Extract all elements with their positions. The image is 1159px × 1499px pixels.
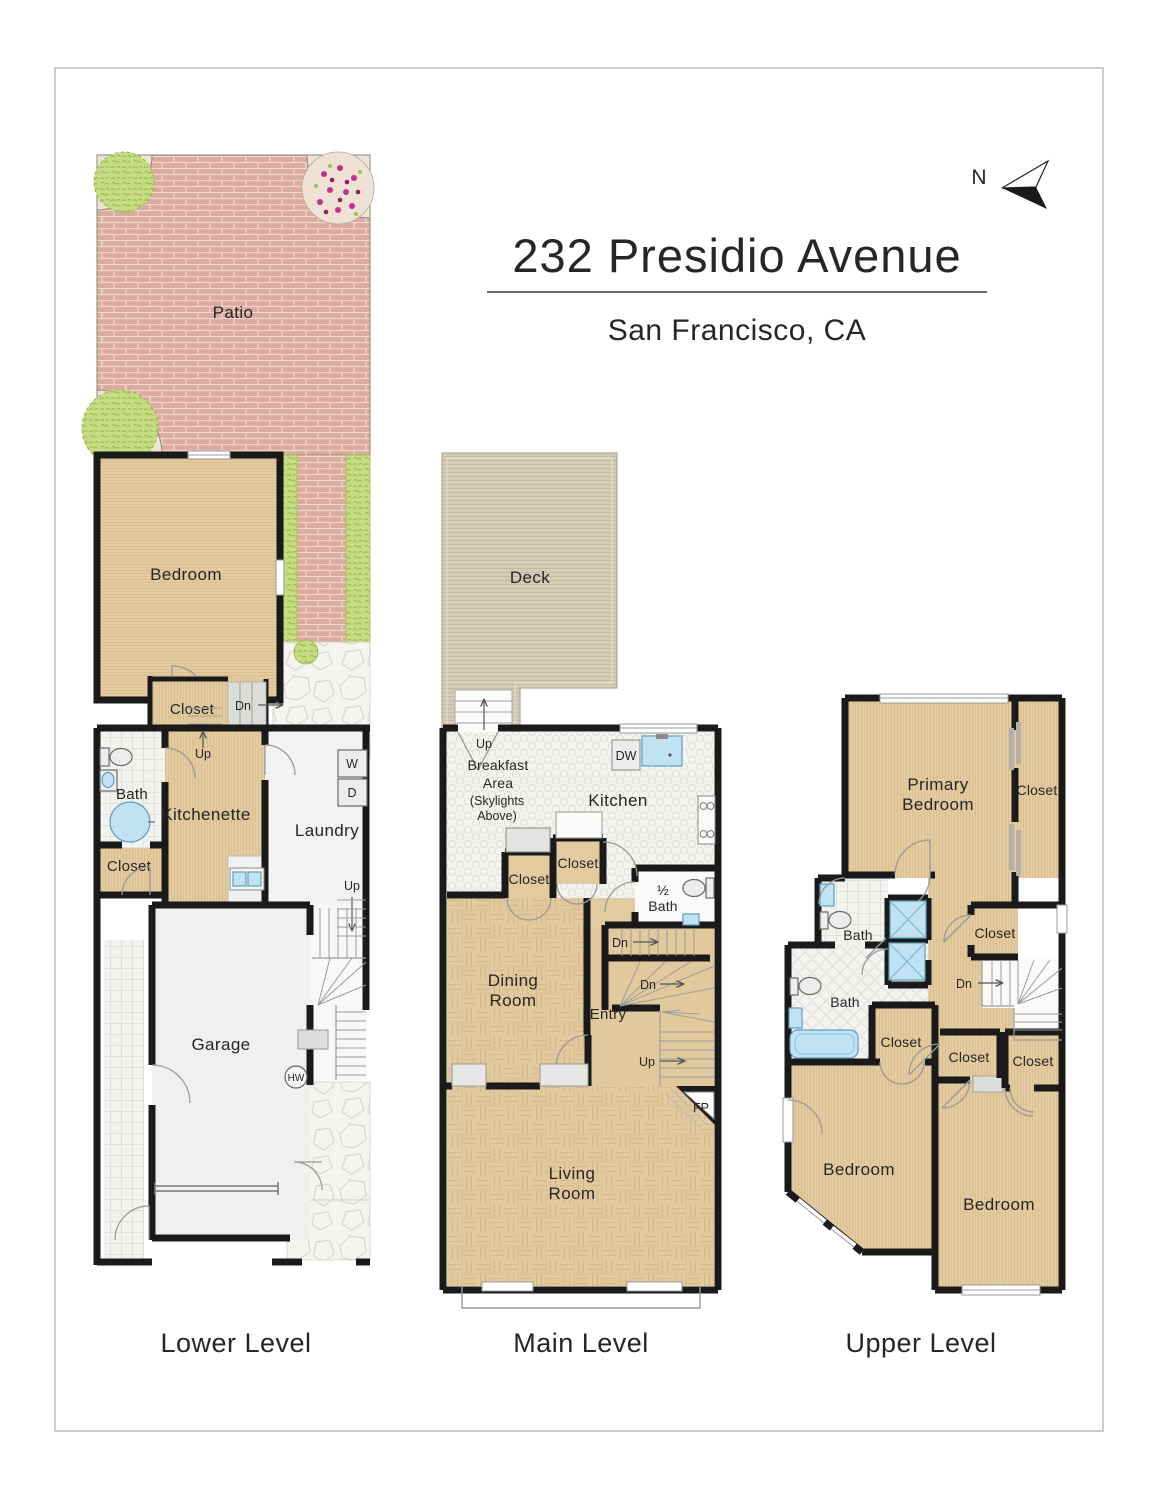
- fireplace-label: FP: [693, 1101, 709, 1115]
- up-label: Up: [344, 879, 360, 893]
- primary-bedroom-label: Primary: [907, 775, 968, 794]
- sink-basin-icon: [233, 872, 246, 886]
- closet-label: Closet: [1017, 782, 1058, 798]
- sink-icon: [102, 773, 114, 788]
- bedroom-left-floor: [788, 1062, 935, 1252]
- closet-label: Closet: [881, 1034, 922, 1050]
- window: [1057, 905, 1067, 933]
- water-heater-label: HW: [288, 1073, 305, 1084]
- patio: Patio: [82, 152, 374, 466]
- toilet-icon: [829, 912, 851, 929]
- half-wall: [540, 1064, 588, 1086]
- primary-bedroom-label-2: Bedroom: [902, 795, 974, 814]
- lower-level-plan: Patio Bedroom: [82, 152, 374, 1358]
- compass-icon: N: [971, 161, 1048, 209]
- page-subtitle: San Francisco, CA: [608, 314, 867, 347]
- deck: Deck: [442, 453, 617, 733]
- toilet-tank: [820, 912, 828, 929]
- entry-label: Entry: [590, 1006, 627, 1023]
- faucet: [656, 734, 668, 739]
- compass-needle-fill: [1002, 187, 1047, 209]
- lower-bedroom: Bedroom: [97, 451, 284, 700]
- toilet-icon: [683, 880, 705, 897]
- half-bath-fraction: ½: [657, 882, 669, 898]
- washer-label: W: [346, 757, 358, 771]
- bedroom-label: Bedroom: [150, 565, 222, 584]
- flower-shrub-icon: [302, 152, 374, 224]
- patio-label: Patio: [213, 303, 254, 322]
- dn-label: Dn: [235, 699, 251, 713]
- bedroom-right-floor: [935, 1080, 1062, 1290]
- deck-label: Deck: [510, 568, 550, 587]
- threshold: [973, 1076, 1003, 1092]
- upper-level-label: Upper Level: [845, 1328, 996, 1358]
- skylights-note: (Skylights: [470, 794, 524, 808]
- skylights-note-2: Above): [477, 809, 517, 823]
- lower-level-label: Lower Level: [160, 1328, 311, 1358]
- main-level-label: Main Level: [513, 1328, 649, 1358]
- page-title: 232 Presidio Avenue: [512, 229, 961, 282]
- half-bath-floor: [635, 868, 714, 925]
- kitchen-label: Kitchen: [588, 791, 648, 810]
- window: [482, 1282, 533, 1291]
- sink-icon: [789, 1008, 802, 1028]
- living-label: Living: [549, 1164, 596, 1183]
- toilet-tank: [100, 748, 109, 766]
- kitchen-sink-icon: [642, 736, 682, 766]
- breakfast-label: Breakfast: [468, 757, 529, 773]
- closet-label: Closet: [170, 701, 215, 718]
- closet-label: Closet: [558, 855, 599, 871]
- up-label: Up: [476, 737, 492, 751]
- sink-icon: [683, 914, 699, 925]
- soaking-tub-icon: [110, 802, 150, 842]
- dryer-label: D: [347, 786, 356, 800]
- half-wall: [452, 1064, 486, 1086]
- bedroom-label: Bedroom: [823, 1160, 895, 1179]
- main-level-plan: Deck DW: [442, 453, 718, 1358]
- counter: [556, 812, 602, 838]
- laundry-label: Laundry: [295, 821, 359, 840]
- bath-label: Bath: [843, 927, 873, 943]
- shrub-icon: [294, 640, 318, 664]
- closet-label: Closet: [975, 925, 1016, 941]
- bath-label: Bath: [830, 994, 860, 1010]
- up-label: Up: [639, 1055, 655, 1069]
- shrub-icon: [94, 152, 154, 212]
- window: [276, 560, 284, 595]
- walkway-tile: [104, 940, 144, 1262]
- toilet-icon: [110, 749, 132, 766]
- toilet-tank: [706, 878, 714, 898]
- toilet-tank: [790, 978, 798, 995]
- utility-box: [298, 1030, 328, 1049]
- dining-label: Dining: [488, 971, 539, 990]
- dn-label: Dn: [640, 978, 656, 992]
- half-bath-label: Bath: [648, 898, 678, 914]
- compass-needle-outline: [1002, 161, 1048, 188]
- living-label-2: Room: [549, 1184, 596, 1203]
- sink-icon: [820, 884, 834, 906]
- sink-basin-icon: [248, 872, 261, 886]
- dining-label-2: Room: [490, 991, 537, 1010]
- floorplan-sheet: 232 Presidio Avenue San Francisco, CA N: [0, 0, 1159, 1499]
- brick-path: [297, 455, 346, 642]
- dishwasher-label: DW: [616, 749, 637, 763]
- window: [783, 1098, 793, 1142]
- compass-north-label: N: [971, 166, 986, 189]
- garage-label: Garage: [191, 1035, 250, 1054]
- closet-label: Closet: [107, 858, 152, 875]
- refrigerator-icon: [506, 828, 550, 852]
- hedge-strip: [346, 455, 370, 655]
- toilet-icon: [799, 978, 821, 995]
- breakfast-label-2: Area: [483, 775, 513, 791]
- window: [627, 1282, 682, 1291]
- closet-label: Closet: [949, 1049, 990, 1065]
- closet-label: Closet: [1013, 1053, 1054, 1069]
- up-label: Up: [195, 747, 211, 761]
- bath-label: Bath: [116, 786, 148, 803]
- kitchenette-label: Kitchenette: [161, 805, 250, 824]
- upper-level-plan: Primary Bedroom Closet Bath: [783, 694, 1067, 1358]
- dn-label: Dn: [612, 936, 628, 950]
- bedroom-label: Bedroom: [963, 1195, 1035, 1214]
- closet-label: Closet: [509, 871, 550, 887]
- header: 232 Presidio Avenue San Francisco, CA N: [487, 161, 1048, 347]
- dn-label: Dn: [956, 977, 972, 991]
